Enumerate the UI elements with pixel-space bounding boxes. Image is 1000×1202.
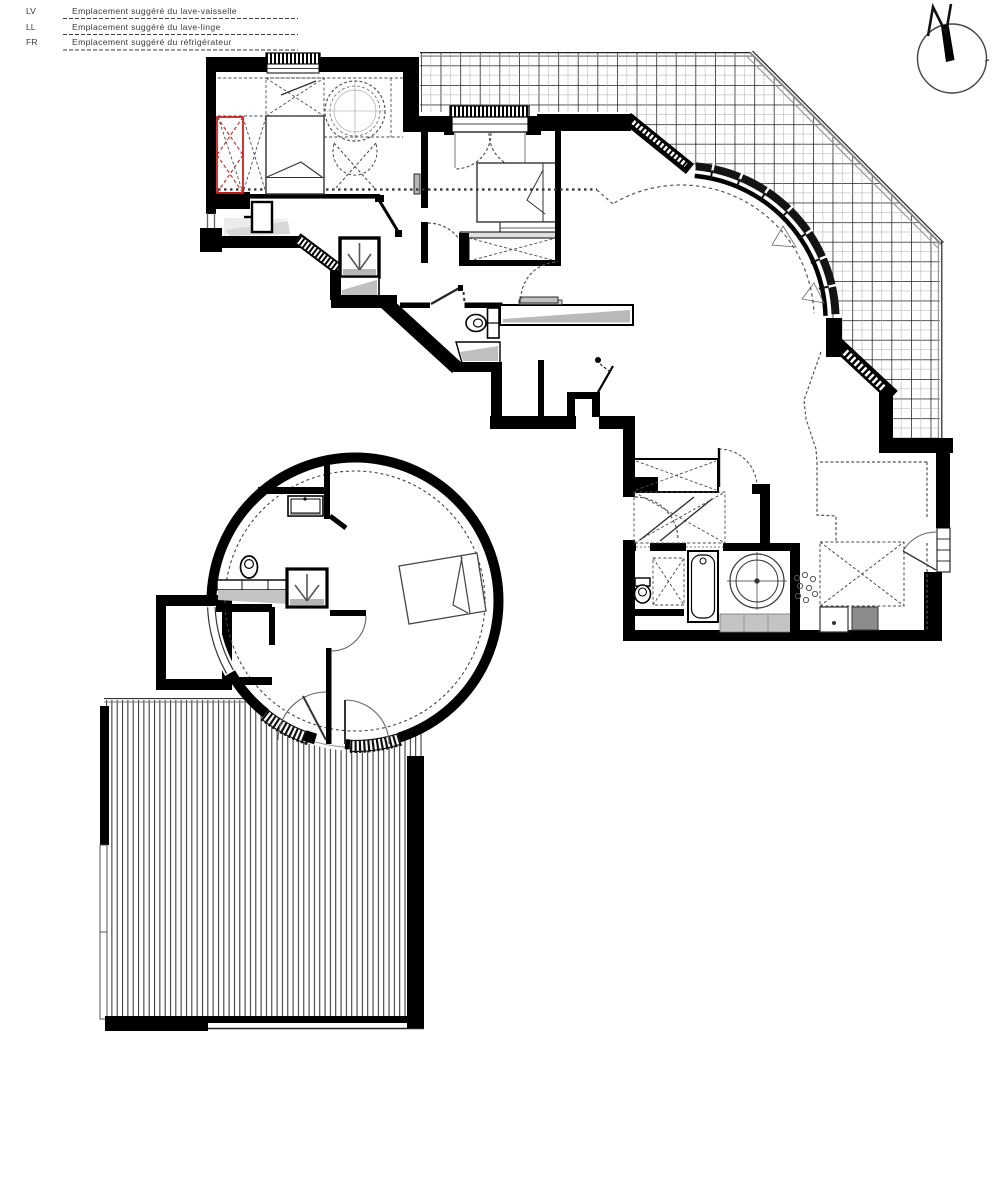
- svg-text:LV: LV: [26, 6, 36, 16]
- svg-text:LL: LL: [26, 22, 36, 32]
- svg-text:Emplacement suggéré du lave-li: Emplacement suggéré du lave-linge: [72, 22, 221, 32]
- svg-text:Emplacement suggéré du lave-va: Emplacement suggéré du lave-vaisselle: [72, 6, 237, 16]
- svg-text:Emplacement suggéré du réfrigé: Emplacement suggéré du réfrigérateur: [72, 37, 232, 47]
- svg-text:FR: FR: [26, 37, 37, 47]
